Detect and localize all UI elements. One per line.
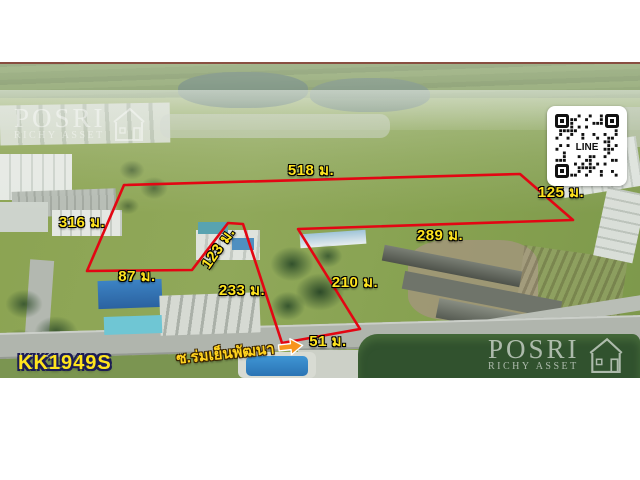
- qr-service-label: LINE: [576, 142, 599, 153]
- measurement-inner-east: 289 ม.: [417, 223, 463, 247]
- measurement-panhandle-left: 233 ม.: [219, 278, 265, 302]
- measurement-west: 316 ม.: [59, 210, 105, 234]
- line-qr-code: LINE: [547, 106, 627, 186]
- measurement-road-frontage: 51 ม.: [309, 329, 346, 353]
- listing-code: KK1949S: [18, 352, 112, 375]
- house-logo-icon: [112, 104, 146, 142]
- measurement-panhandle-right: 210 ม.: [332, 270, 378, 294]
- brand-subtitle: RICHY ASSET: [14, 130, 106, 141]
- brand-watermark: POSRI RICHY ASSET: [14, 104, 146, 142]
- brand-watermark: POSRI RICHY ASSET: [488, 334, 626, 374]
- brand-name: POSRI: [14, 106, 106, 130]
- aerial-photo: 518 ม. 125 ม. 289 ม. 210 ม. 51 ม. 233 ม.…: [0, 62, 640, 378]
- brand-name: POSRI: [488, 337, 580, 361]
- qr-pattern: LINE: [552, 111, 622, 181]
- measurement-north: 518 ม.: [288, 158, 334, 182]
- brand-subtitle: RICHY ASSET: [488, 361, 580, 372]
- listing-image: 518 ม. 125 ม. 289 ม. 210 ม. 51 ม. 233 ม.…: [0, 0, 640, 480]
- arrow-right-icon: [276, 335, 304, 358]
- house-logo-icon: [586, 334, 626, 374]
- measurement-south-left: 87 ม.: [118, 264, 155, 288]
